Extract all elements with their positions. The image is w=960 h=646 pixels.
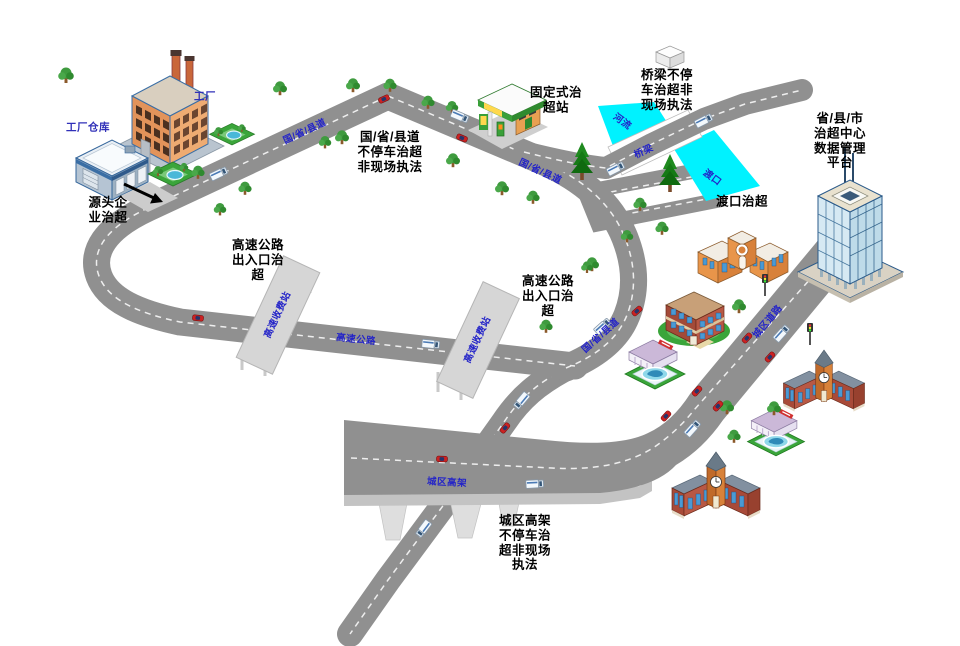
viaduct-label: 城区高架 bbox=[427, 477, 467, 489]
car bbox=[436, 456, 447, 462]
traffic-light bbox=[762, 274, 768, 296]
platform-label: 省/县/市 治超中心 数据管理 平台 bbox=[814, 112, 866, 171]
bridge-nonstop-label: 桥梁不停 车治超非 现场执法 bbox=[641, 68, 693, 112]
bridge-booth bbox=[656, 46, 684, 68]
overload-control-diagram: 工厂 工厂仓库 源头企 业治超 国/省/县道 不停车治超 非现场执法 固定式治 … bbox=[0, 0, 960, 646]
source-enterprise-label: 源头企 业治超 bbox=[88, 195, 127, 225]
ferry-control-label: 渡口治超 bbox=[716, 195, 768, 210]
viaduct-urban-road bbox=[344, 238, 853, 540]
civic-building bbox=[698, 231, 788, 283]
brick-mansion bbox=[658, 292, 730, 349]
road-nonstop-label: 国/省/县道 不停车治超 非现场执法 bbox=[357, 130, 422, 174]
truck bbox=[526, 480, 544, 489]
factory-label: 工厂 bbox=[194, 89, 216, 104]
clock-school bbox=[672, 452, 760, 519]
highway-exit-left-label: 高速公路 出入口治 超 bbox=[232, 238, 284, 282]
fixed-station-label: 固定式治 超站 bbox=[530, 85, 582, 115]
viaduct-pier bbox=[450, 500, 482, 538]
pool-house bbox=[625, 339, 685, 389]
highway-exit-right-label: 高速公路 出入口治 超 bbox=[522, 274, 574, 318]
pool-house bbox=[748, 409, 805, 456]
viaduct-nonstop-label: 城区高架 不停车治 超非现场 执法 bbox=[499, 514, 551, 573]
clock-school bbox=[784, 350, 865, 412]
warehouse-label: 工厂仓库 bbox=[66, 120, 110, 135]
car bbox=[192, 315, 204, 322]
traffic-light bbox=[807, 323, 813, 345]
